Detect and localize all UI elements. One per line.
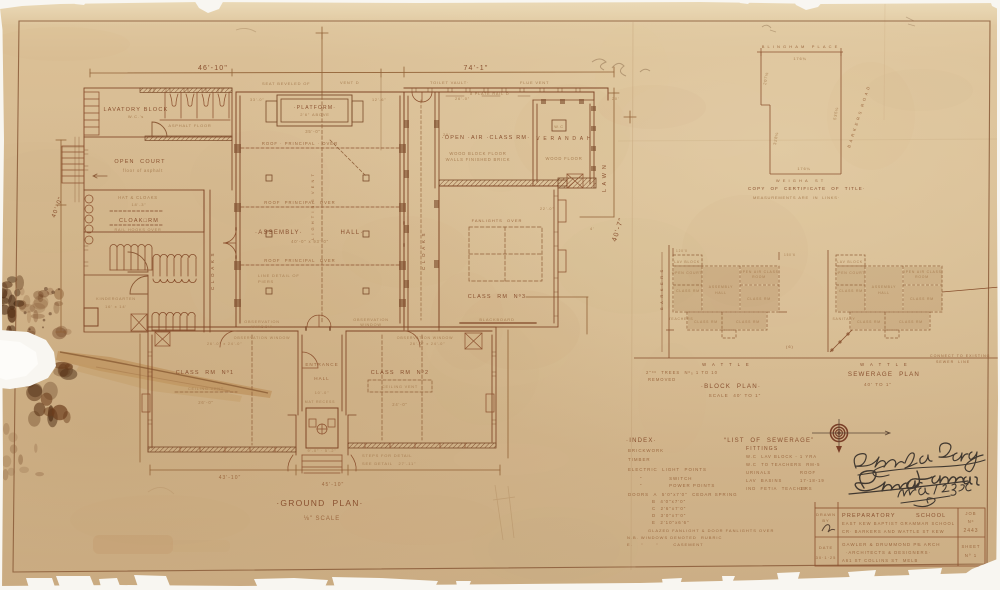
svg-text:CR· BARKERS AND WATTLE ST KEW: CR· BARKERS AND WATTLE ST KEW	[842, 529, 945, 534]
svg-text:CLASS RM: CLASS RM	[694, 320, 718, 324]
svg-text:OBSERVATION: OBSERVATION	[244, 320, 280, 324]
svg-text:floor of asphalt: floor of asphalt	[123, 168, 163, 173]
svg-text:FANLIGHTS OVER: FANLIGHTS OVER	[472, 218, 523, 223]
svg-text:⅛" SCALE: ⅛" SCALE	[304, 516, 340, 522]
svg-text:WALLS FINISHED BRICK: WALLS FINISHED BRICK	[446, 157, 511, 162]
svg-text:4': 4'	[590, 227, 594, 231]
svg-text:33'-0": 33'-0"	[250, 98, 264, 102]
svg-text:OPEN COURT: OPEN COURT	[672, 271, 703, 275]
svg-text:176¾: 176¾	[793, 56, 806, 61]
svg-text:STEPS FOR DETAIL: STEPS FOR DETAIL	[362, 453, 412, 458]
svg-text:LAV BASINS: LAV BASINS	[746, 478, 782, 483]
svg-text:L A W N: L A W N	[602, 164, 608, 192]
svg-text:CLASS RM Nº3: CLASS RM Nº3	[468, 293, 527, 300]
svg-text:WINDOW: WINDOW	[360, 323, 381, 327]
svg-text:JOB: JOB	[965, 511, 976, 516]
svg-text:BRICKWORK: BRICKWORK	[628, 448, 664, 453]
svg-text:CLOAK□RM: CLOAK□RM	[119, 218, 159, 224]
svg-text:E 2'10"x6'6": E 2'10"x6'6"	[652, 520, 690, 525]
svg-text:VENT D: VENT D	[340, 80, 359, 85]
svg-text:W.C LAV BLOCK - 1 YRA: W.C LAV BLOCK - 1 YRA	[746, 454, 817, 459]
svg-text:SEAT BEVELED OF: SEAT BEVELED OF	[262, 81, 310, 86]
svg-text:W.C TO TEACHERS RM-5: W.C TO TEACHERS RM-5	[746, 462, 821, 467]
svg-text:150'6: 150'6	[784, 253, 796, 257]
svg-text:CLASS RM Nº1: CLASS RM Nº1	[176, 369, 235, 376]
svg-text:176¼: 176¼	[797, 166, 810, 171]
svg-text:BLACKBOARD: BLACKBOARD	[479, 317, 514, 322]
svg-text:SCALE 40' TO 1": SCALE 40' TO 1"	[709, 393, 762, 398]
svg-text:ENTRANCE: ENTRANCE	[305, 362, 338, 367]
svg-text:26'-0": 26'-0"	[198, 400, 213, 405]
svg-text:26'-0" x 24'-0": 26'-0" x 24'-0"	[207, 342, 242, 346]
svg-text:EAST KEW BAPTIST GRAMMAR SCHOO: EAST KEW BAPTIST GRAMMAR SCHOOL	[842, 521, 955, 526]
svg-text:MAT RECESS: MAT RECESS	[305, 400, 336, 404]
svg-text:E. “ “ CASEMENT: E. “ “ CASEMENT	[627, 542, 704, 547]
svg-text:45'-10": 45'-10"	[322, 482, 345, 488]
svg-text:CEILING VENT: CEILING VENT	[188, 387, 224, 391]
svg-text:W E I G H A S T: W E I G H A S T	[776, 178, 824, 183]
svg-text:W.C.'s: W.C.'s	[128, 114, 144, 119]
svg-text:ROOF PRINCIPAL OVER: ROOF PRINCIPAL OVER	[264, 200, 335, 205]
svg-text:2'6" ABOVE: 2'6" ABOVE	[300, 112, 330, 117]
svg-text:ELECTRIC LIGHT POINTS: ELECTRIC LIGHT POINTS	[628, 467, 707, 472]
svg-text:CEILING VENT: CEILING VENT	[382, 385, 418, 389]
svg-text:ASPHALT FLOOR: ASPHALT FLOOR	[168, 123, 211, 128]
svg-text:C L O A K S: C L O A K S	[421, 232, 426, 270]
svg-text:A61 ST COLLINS ST MELB: A61 ST COLLINS ST MELB	[842, 558, 918, 563]
svg-text:OBSERVATION WINDOW: OBSERVATION WINDOW	[397, 336, 454, 340]
svg-text:OBSERVATION: OBSERVATION	[353, 318, 389, 322]
svg-text:·GROUND PLAN·: ·GROUND PLAN·	[276, 498, 363, 508]
svg-text:B L I N G H A M P L A C E: B L I N G H A M P L A C E	[762, 44, 839, 49]
svg-text:ASSEMBLY: ASSEMBLY	[709, 285, 733, 289]
svg-text:DRAWN: DRAWN	[816, 512, 836, 517]
svg-text:TEACHERS: TEACHERS	[669, 317, 694, 321]
svg-text:2443: 2443	[963, 528, 978, 534]
svg-text:26'-0": 26'-0"	[455, 96, 470, 101]
svg-text:W.C: W.C	[554, 125, 564, 129]
svg-text:10'-0": 10'-0"	[315, 391, 329, 395]
svg-text:URINALS: URINALS	[746, 470, 771, 475]
svg-text:ROOF PRINCIPAL OVER: ROOF PRINCIPAL OVER	[264, 258, 335, 263]
svg-text:ROOM: ROOM	[752, 275, 766, 279]
svg-text:·ARCHITECTS & DESIGNERS·: ·ARCHITECTS & DESIGNERS·	[846, 550, 931, 555]
svg-text:WOOD BLOCK FLOOR: WOOD BLOCK FLOOR	[449, 151, 506, 156]
svg-text:·INDEX·: ·INDEX·	[626, 438, 657, 444]
svg-text:·ASSEMBLY·: ·ASSEMBLY·	[255, 230, 303, 236]
svg-text:OPEN AIR CLASS: OPEN AIR CLASS	[739, 270, 778, 274]
svg-text:CLASS RM: CLASS RM	[747, 297, 771, 301]
svg-text:40'-0" x 93'-0": 40'-0" x 93'-0"	[291, 239, 329, 244]
svg-text:L I G H T I N G V E N T: L I G H T I N G V E N T	[310, 173, 315, 240]
svg-text:8 PLATE RAIL D: 8 PLATE RAIL D	[470, 92, 509, 96]
svg-text:WOOD FLOOR: WOOD FLOOR	[545, 156, 582, 161]
svg-text:CONNECT TO EXISTING: CONNECT TO EXISTING	[930, 354, 990, 358]
svg-text:CLASS RM: CLASS RM	[736, 320, 760, 324]
svg-text:B 4'0"x7'0": B 4'0"x7'0"	[652, 499, 686, 504]
svg-text:HALL: HALL	[715, 291, 727, 295]
svg-text:46'-10": 46'-10"	[198, 65, 228, 72]
svg-text:Nº 1: Nº 1	[965, 553, 977, 558]
svg-text:V E R A N D A H: V E R A N D A H	[536, 136, 592, 142]
svg-text:Nº: Nº	[968, 519, 975, 524]
svg-text:22'-0": 22'-0"	[540, 207, 554, 211]
svg-text:2"ºº TREES Nº₅ 1 TO 10: 2"ºº TREES Nº₅ 1 TO 10	[646, 370, 718, 375]
svg-text:SEWERAGE PLAN: SEWERAGE PLAN	[848, 371, 920, 378]
svg-text:“ POWER POINTS: “ POWER POINTS	[640, 483, 715, 488]
svg-text:“LIST OF SEWERAGE”: “LIST OF SEWERAGE”	[724, 438, 814, 444]
svg-text:DOORS A 5'0"x7'0" CEDAR SPR: DOORS A 5'0"x7'0" CEDAR SPRING	[628, 492, 738, 497]
svg-text:SEE DETAIL 27'-11": SEE DETAIL 27'-11"	[362, 461, 416, 466]
svg-text:120'0: 120'0	[676, 249, 688, 253]
svg-text:TIMBER: TIMBER	[628, 457, 651, 462]
svg-text:LINE DETAIL OF: LINE DETAIL OF	[258, 273, 300, 278]
svg-text:ROOM: ROOM	[915, 275, 929, 279]
svg-text:19: 19	[800, 486, 807, 491]
svg-text:18'-3": 18'-3"	[132, 202, 147, 207]
svg-text:FITTINGS: FITTINGS	[746, 446, 778, 452]
svg-text:DATE: DATE	[819, 545, 833, 550]
svg-text:W A T T L E: W A T T L E	[860, 362, 908, 367]
svg-text:24'-0": 24'-0"	[392, 402, 407, 407]
svg-text:TOILET VAULT·: TOILET VAULT·	[430, 80, 469, 85]
svg-text:B A R K E R S: B A R K E R S	[659, 269, 664, 310]
svg-text:12'-6": 12'-6"	[372, 98, 386, 102]
svg-text:OBSERVATION WINDOW: OBSERVATION WINDOW	[234, 336, 291, 340]
svg-text:MEASUREMENTS ARE IN LINKS·: MEASUREMENTS ARE IN LINKS·	[753, 195, 840, 200]
svg-text:16' x 14': 16' x 14'	[105, 304, 127, 309]
svg-text:C 2'6"x7'0": C 2'6"x7'0"	[652, 506, 686, 511]
svg-text:COPY OF CERTIFICATE OF TIT: COPY OF CERTIFICATE OF TITLE·	[748, 186, 866, 191]
svg-text:OPEN COURT: OPEN COURT	[835, 271, 866, 275]
svg-text:43'-10": 43'-10"	[219, 475, 242, 481]
svg-text:30·1·25: 30·1·25	[816, 555, 837, 560]
svg-text:FLUE VENT: FLUE VENT	[520, 80, 549, 85]
svg-text:40' TO 1": 40' TO 1"	[864, 382, 892, 387]
svg-text:ASSEMBLY: ASSEMBLY	[872, 285, 896, 289]
svg-text:CLASS RM Nº2: CLASS RM Nº2	[371, 369, 430, 376]
svg-text:SANITARY: SANITARY	[832, 317, 855, 321]
svg-text:HALL: HALL	[878, 291, 890, 295]
svg-text:SCHOOL: SCHOOL	[916, 513, 946, 519]
svg-text:GAWLER & DRUMMOND Pʦ ARCH: GAWLER & DRUMMOND Pʦ ARCH	[842, 542, 941, 547]
svg-text:C L O A K S: C L O A K S	[210, 252, 215, 290]
svg-text:35'-0": 35'-0"	[305, 129, 320, 134]
svg-text:(6): (6)	[786, 344, 794, 349]
svg-text:CLASS RM: CLASS RM	[839, 289, 863, 293]
svg-text:·PLATFORM·: ·PLATFORM·	[294, 105, 336, 111]
svg-text:HAT & CLOAKS: HAT & CLOAKS	[118, 195, 158, 200]
svg-text:LAV BLOCK: LAV BLOCK	[837, 260, 863, 264]
svg-text:LAVATORY BLOCK: LAVATORY BLOCK	[104, 107, 169, 113]
svg-text:GLAZED FANLIGHT & DOOR FANLIGH: GLAZED FANLIGHT & DOOR FANLIGHTS OVER	[648, 528, 774, 533]
svg-text:CLASS RM: CLASS RM	[857, 320, 881, 324]
svg-text:KINDERGARTEN: KINDERGARTEN	[96, 297, 136, 301]
svg-text:OPEN COURT: OPEN COURT	[114, 159, 165, 165]
svg-text:SHEET: SHEET	[962, 544, 981, 549]
svg-text:PREPARATORY: PREPARATORY	[842, 513, 896, 519]
svg-text:ROOF: ROOF	[800, 470, 816, 475]
svg-text:W A T T L E: W A T T L E	[702, 362, 750, 367]
svg-text:CLASS RM: CLASS RM	[899, 320, 923, 324]
svg-text:REMOVED: REMOVED	[648, 377, 676, 382]
svg-text:·OPEN ·AIR ·CLASS RM·: ·OPEN ·AIR ·CLASS RM·	[442, 135, 530, 141]
svg-text:CLASS RM: CLASS RM	[910, 297, 934, 301]
svg-text:WINDOW: WINDOW	[251, 325, 272, 329]
svg-text:“ SWITCH: “ SWITCH	[640, 476, 692, 481]
svg-text:CLASS RM: CLASS RM	[676, 289, 700, 293]
svg-text:HALL·: HALL·	[340, 230, 363, 236]
svg-text:26'-0" x 24'-0": 26'-0" x 24'-0"	[410, 342, 445, 346]
svg-text:OPEN AIR CLASS: OPEN AIR CLASS	[902, 270, 941, 274]
svg-text:LAV BLOCK: LAV BLOCK	[674, 260, 700, 264]
svg-text:17-18-19: 17-18-19	[800, 478, 825, 483]
svg-text:9'-0" · 5'-2": 9'-0" · 5'-2"	[308, 449, 337, 453]
svg-text:RAIL HOOKS OVER: RAIL HOOKS OVER	[114, 228, 161, 232]
svg-text:BY: BY	[822, 518, 829, 523]
svg-text:PIERS: PIERS	[258, 279, 274, 284]
svg-text:D 3'0"x7'0": D 3'0"x7'0"	[652, 513, 686, 518]
svg-text:N.B. WINDOWS DENOTED RUBRIC: N.B. WINDOWS DENOTED RUBRIC	[627, 535, 722, 540]
svg-text:·BLOCK PLAN·: ·BLOCK PLAN·	[701, 383, 761, 390]
svg-text:HALL: HALL	[314, 376, 330, 381]
svg-text:SEWER LINE: SEWER LINE	[936, 360, 970, 364]
svg-text:20': 20'	[612, 97, 619, 101]
svg-text:ROOF · PRINCIPAL · OVER: ROOF · PRINCIPAL · OVER	[262, 141, 338, 146]
svg-text:74'-1": 74'-1"	[463, 65, 488, 72]
